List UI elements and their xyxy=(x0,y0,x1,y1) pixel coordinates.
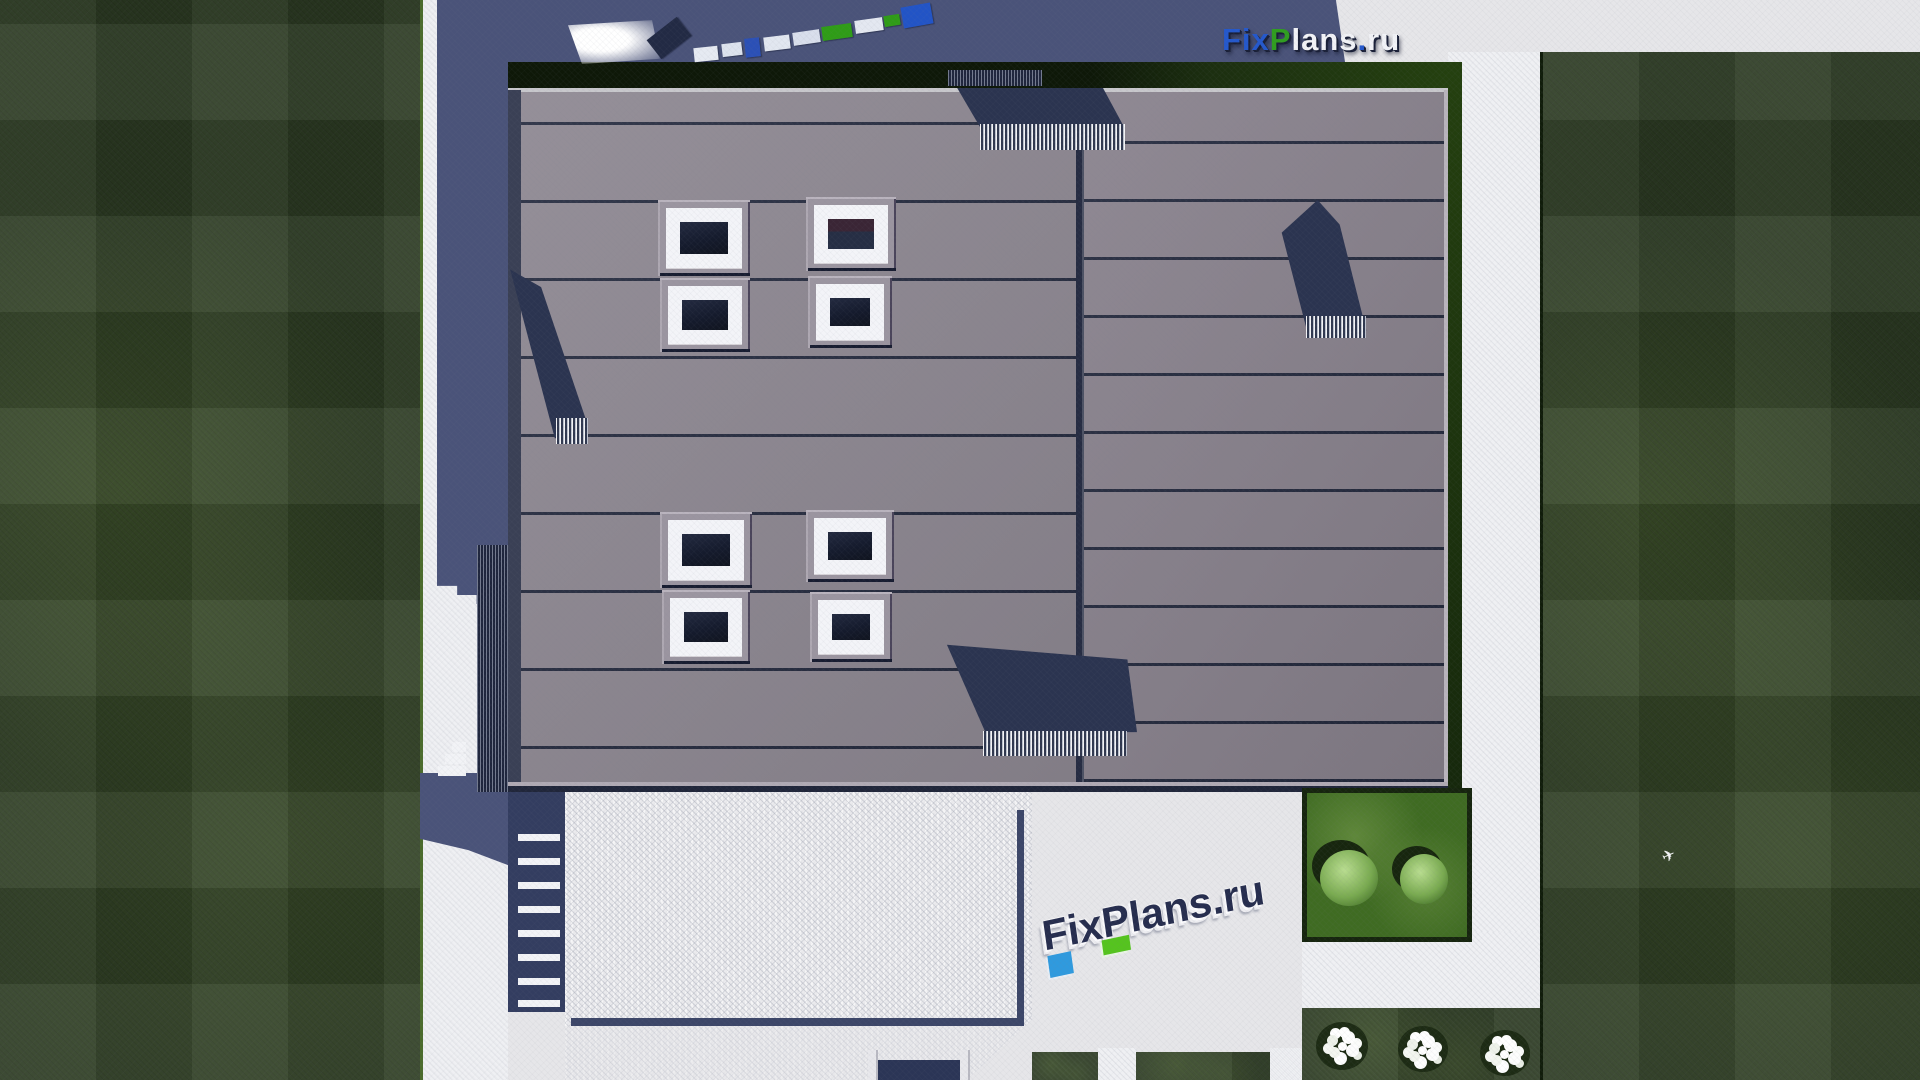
corner-step xyxy=(452,742,466,752)
garden-path-band xyxy=(1302,932,1540,1008)
logo-text-ru: ru xyxy=(1367,22,1400,57)
bush xyxy=(1320,850,1378,906)
skylight-glass xyxy=(680,222,728,254)
skylight-glass xyxy=(684,612,728,642)
watermark-block xyxy=(693,46,718,62)
skylight xyxy=(806,197,896,271)
corner-step xyxy=(445,754,466,764)
porch-post xyxy=(960,1050,970,1080)
skylight-frame xyxy=(668,520,744,580)
house-shadow-left-strip xyxy=(437,0,509,604)
watermark-block xyxy=(721,42,742,57)
hedge-right xyxy=(1448,62,1462,792)
flower-cluster xyxy=(1418,1046,1427,1055)
skylight-frame xyxy=(818,600,884,654)
watermark-text: FixPlans.ru xyxy=(1039,861,1290,961)
chimney-right xyxy=(1306,316,1366,338)
terrace-border-bottom xyxy=(571,1018,1023,1026)
terrace-border-right xyxy=(1017,810,1024,1026)
watermark-block xyxy=(744,37,761,57)
front-lawn-strip xyxy=(1136,1052,1270,1080)
terrace xyxy=(565,792,1032,1080)
fixplans-logo: FixPlans.ru xyxy=(1222,22,1400,58)
bush xyxy=(1400,854,1448,904)
skylight-glass xyxy=(828,532,872,560)
skylight xyxy=(808,276,892,348)
stair-step xyxy=(518,954,560,961)
stair-step xyxy=(518,1000,560,1007)
skylight-frame xyxy=(670,598,742,656)
skylight-glass xyxy=(828,219,874,249)
chimney-bottom xyxy=(983,731,1127,756)
front-lawn-strip xyxy=(1032,1052,1098,1080)
skylight xyxy=(806,510,894,582)
skylight xyxy=(810,592,892,662)
roof-right-edge xyxy=(1444,90,1448,790)
render-canvas: ✈ FixPlans.ru FixPlans.ru xyxy=(0,0,1920,1080)
stair-step xyxy=(518,906,560,913)
stair-step xyxy=(518,978,560,985)
roof-edge-gravel-strip xyxy=(477,545,508,792)
skylight-frame xyxy=(816,284,884,340)
entrance-porch xyxy=(878,1060,960,1080)
chimney-top xyxy=(980,124,1125,150)
walk-pad xyxy=(1270,1048,1305,1080)
fixplans-watermark-bottom: FixPlans.ru xyxy=(1039,861,1300,1032)
skylight xyxy=(660,512,752,588)
skylight-glass xyxy=(832,614,870,640)
corner-step xyxy=(438,766,466,776)
skylight xyxy=(660,278,750,352)
stair-step xyxy=(518,882,560,889)
skylight-frame xyxy=(814,518,886,574)
skylight-glass xyxy=(682,534,730,566)
logo-text-dot: . xyxy=(1358,22,1368,57)
roof-right-panels xyxy=(1084,92,1444,788)
skylight-frame xyxy=(668,286,742,344)
logo-text-lans: lans xyxy=(1291,22,1357,57)
skylight-frame xyxy=(814,205,888,263)
porch-post xyxy=(868,1050,878,1080)
stair-step xyxy=(518,858,560,865)
skylight-glass xyxy=(682,300,728,330)
roof-left-fascia xyxy=(508,90,521,792)
stair-step xyxy=(518,930,560,937)
skylight-frame xyxy=(666,208,742,268)
skylight xyxy=(662,590,750,664)
flower-cluster xyxy=(1338,1042,1347,1051)
logo-text-fix: Fix xyxy=(1222,22,1270,57)
walk-pad xyxy=(1098,1048,1136,1080)
right-lawn xyxy=(1540,52,1920,1080)
side-stairs xyxy=(508,792,566,1012)
rear-vent-top xyxy=(948,70,1042,86)
skylight xyxy=(658,200,750,276)
stair-step xyxy=(518,834,560,841)
skylight-glass xyxy=(830,298,870,326)
vent-left xyxy=(556,418,588,444)
left-lawn xyxy=(0,0,423,1080)
watermark-blue-cube xyxy=(1047,951,1074,978)
flower-cluster xyxy=(1500,1050,1509,1059)
logo-text-p: P xyxy=(1270,22,1292,57)
